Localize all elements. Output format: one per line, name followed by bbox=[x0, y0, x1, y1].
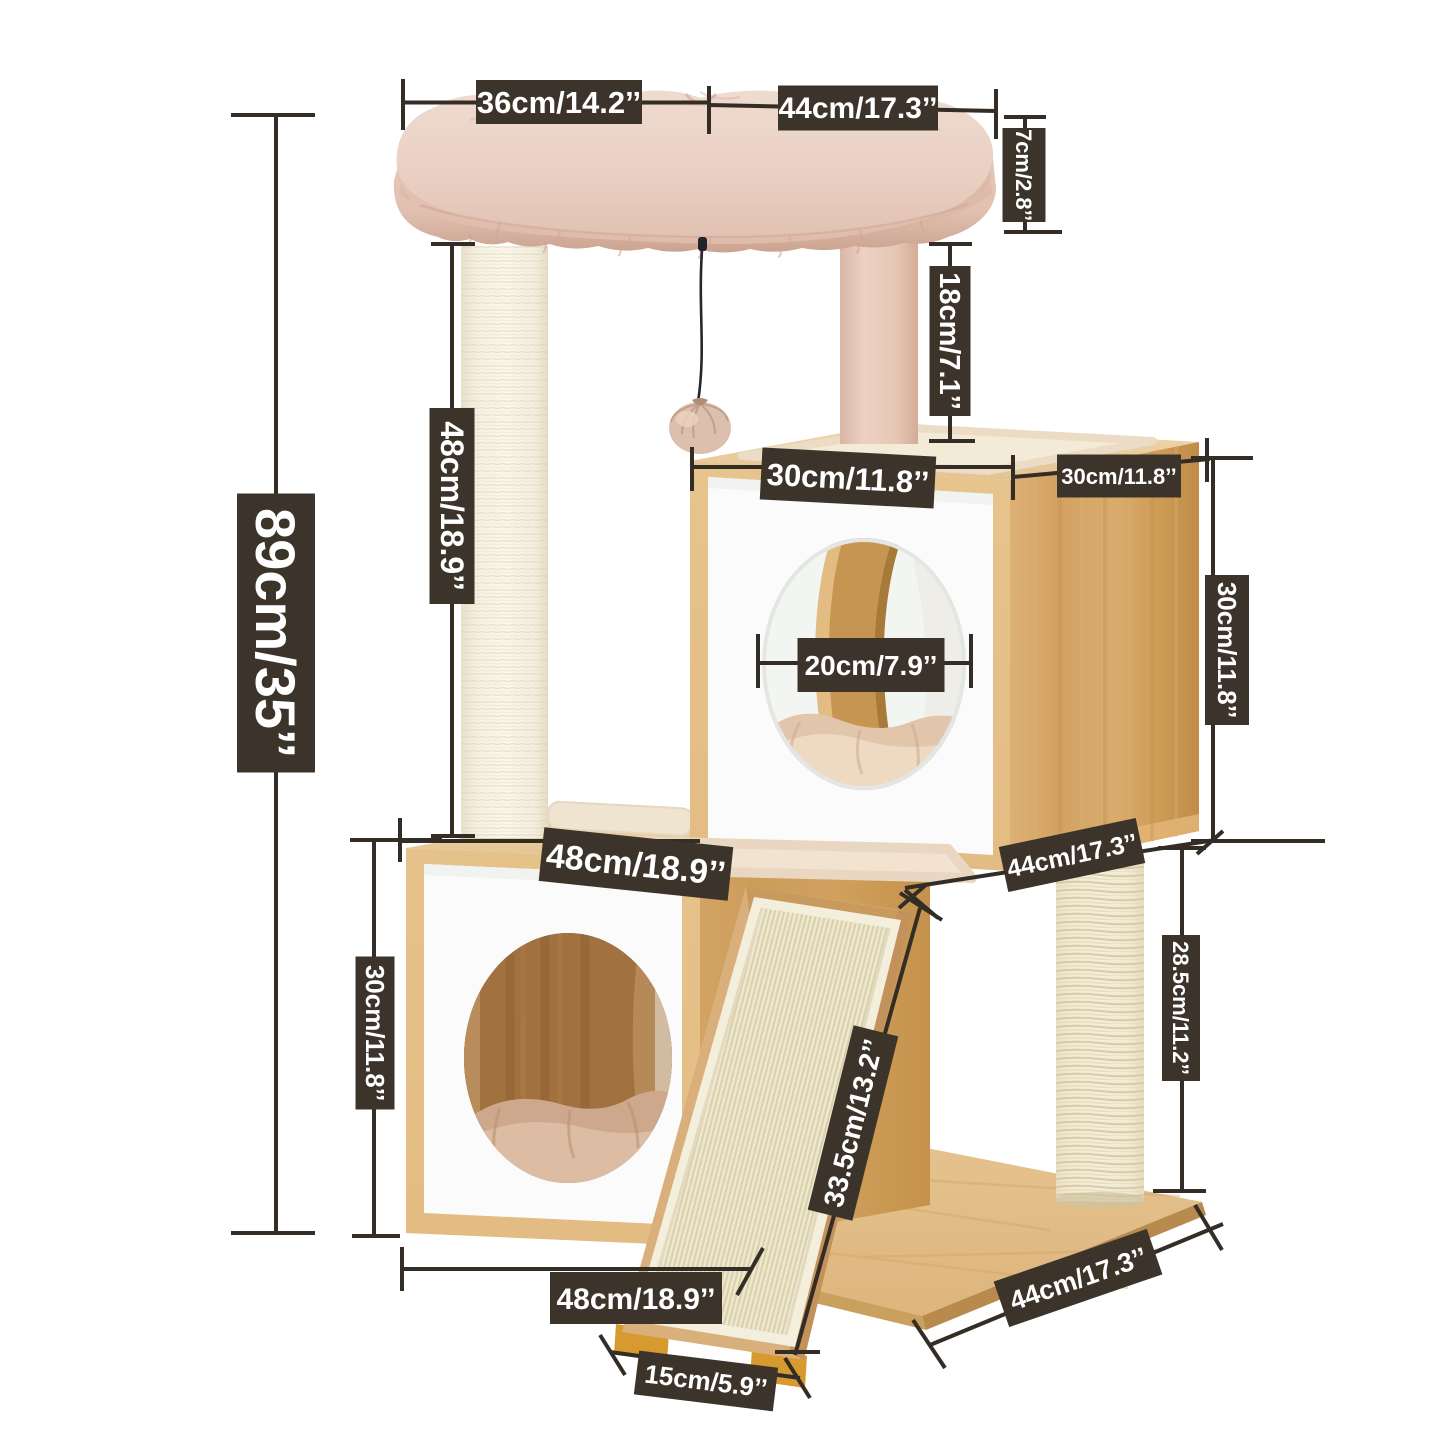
svg-text:28.5cm/11.2’’: 28.5cm/11.2’’ bbox=[1168, 941, 1193, 1075]
svg-text:7cm/2.8’’: 7cm/2.8’’ bbox=[1011, 129, 1036, 221]
svg-text:48cm/18.9’’: 48cm/18.9’’ bbox=[434, 421, 470, 591]
svg-text:89cm/35’’: 89cm/35’’ bbox=[244, 508, 307, 758]
svg-text:30cm/11.8’’: 30cm/11.8’’ bbox=[1212, 582, 1242, 718]
svg-text:36cm/14.2’’: 36cm/14.2’’ bbox=[477, 85, 641, 120]
svg-text:30cm/11.8’’: 30cm/11.8’’ bbox=[360, 965, 390, 1101]
svg-text:20cm/7.9’’: 20cm/7.9’’ bbox=[805, 650, 938, 681]
svg-text:18cm/7.1’’: 18cm/7.1’’ bbox=[933, 272, 965, 410]
svg-text:48cm/18.9’’: 48cm/18.9’’ bbox=[556, 1283, 715, 1316]
svg-text:30cm/11.8’’: 30cm/11.8’’ bbox=[1061, 464, 1176, 489]
svg-text:44cm/17.3’’: 44cm/17.3’’ bbox=[778, 92, 937, 125]
